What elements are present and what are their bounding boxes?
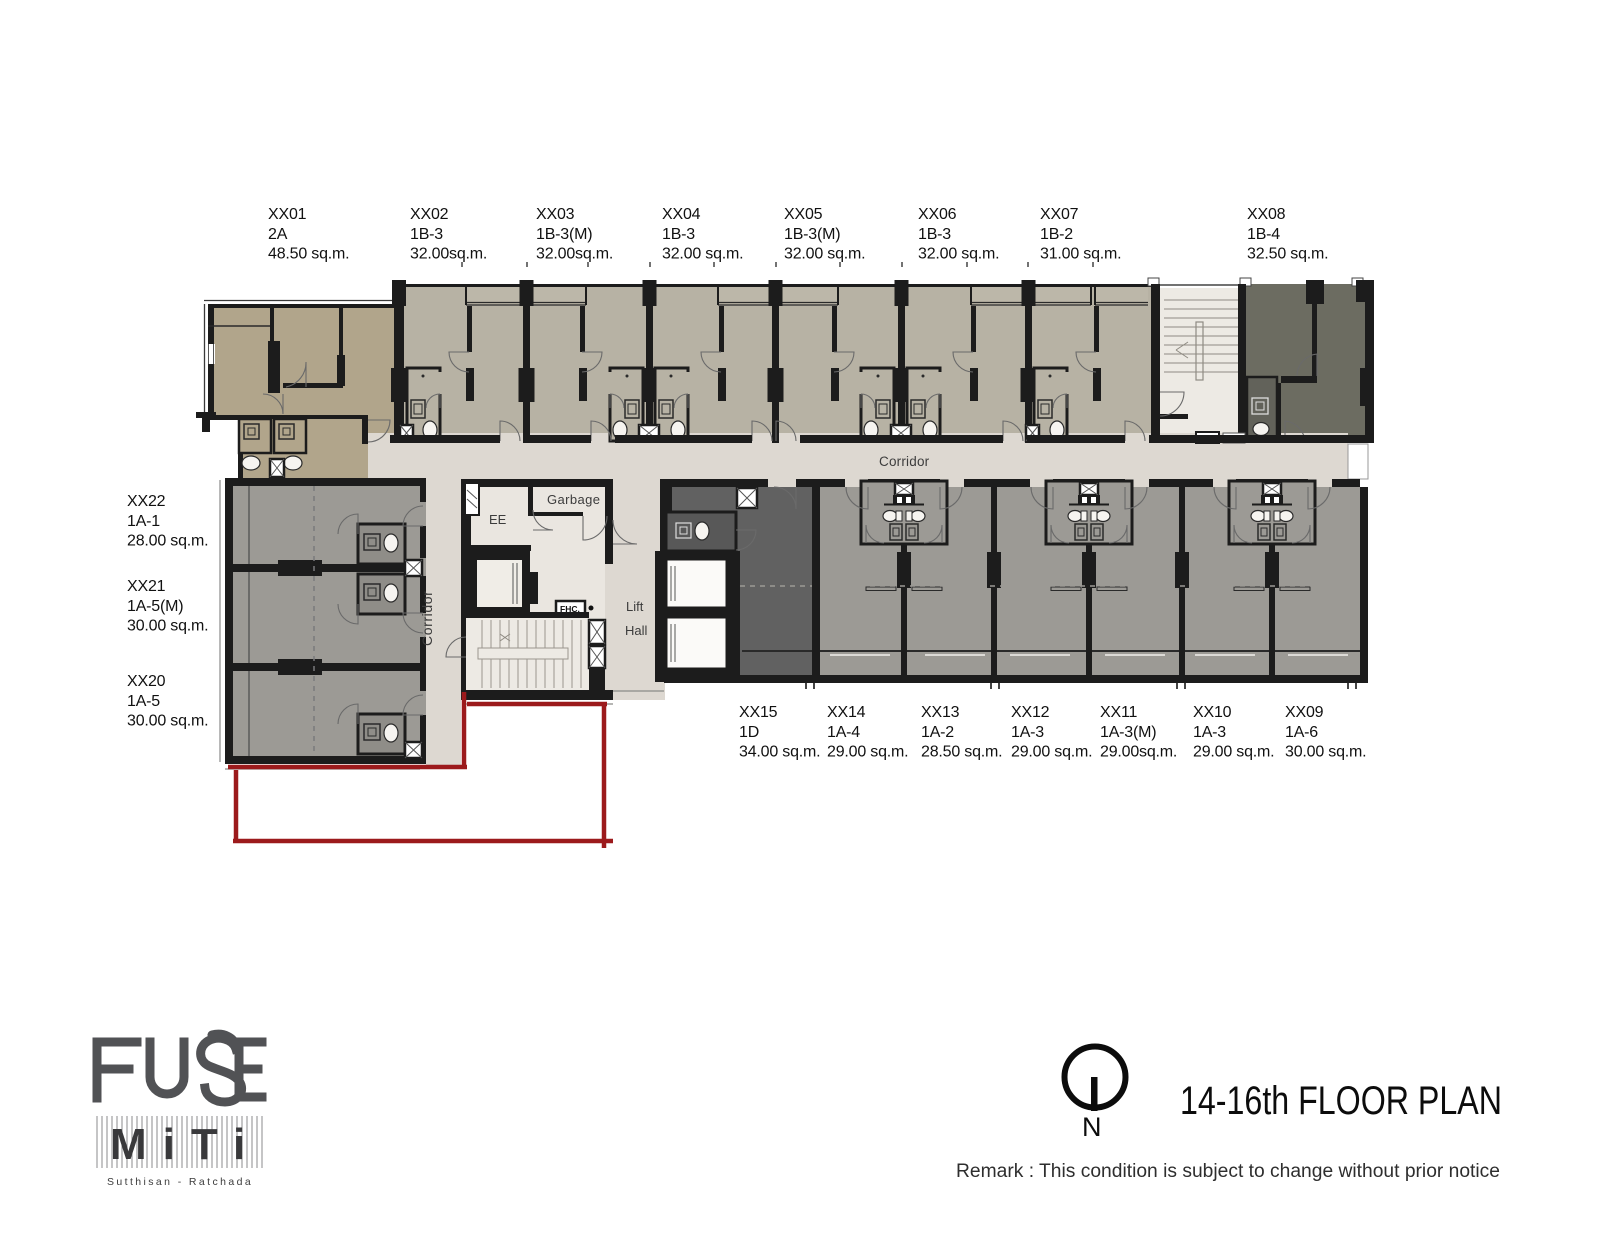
- svg-text:Corridor: Corridor: [419, 591, 435, 646]
- svg-text:14-16th FLOOR PLAN: 14-16th FLOOR PLAN: [1180, 1079, 1502, 1123]
- svg-text:EE: EE: [489, 512, 507, 527]
- svg-text:Sutthisan - Ratchada: Sutthisan - Ratchada: [107, 1176, 253, 1188]
- svg-text:Garbage: Garbage: [547, 492, 600, 507]
- svg-text:MiTi: MiTi: [110, 1120, 261, 1169]
- svg-text:Remark : This condition is sub: Remark : This condition is subject to ch…: [956, 1161, 1500, 1182]
- svg-text:Corridor: Corridor: [879, 454, 930, 469]
- svg-text:N: N: [1082, 1112, 1102, 1142]
